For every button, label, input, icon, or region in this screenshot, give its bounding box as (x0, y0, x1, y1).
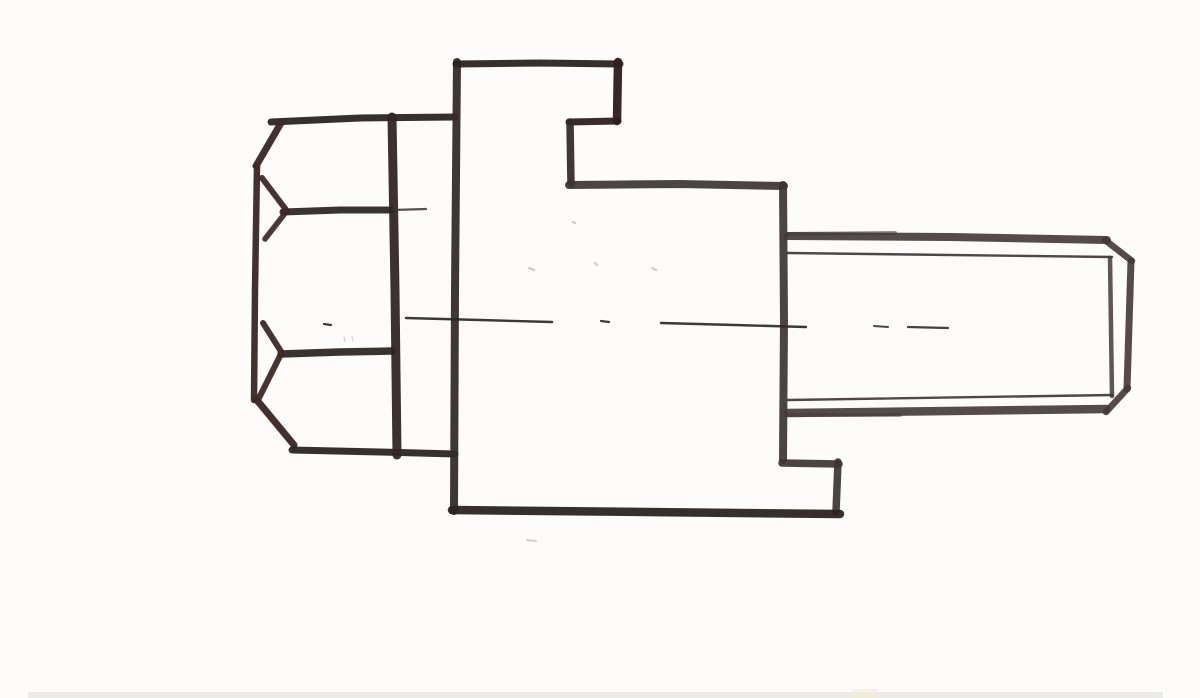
shank-bottom-edge (788, 409, 1106, 413)
shank-chamfer-root-edge (1110, 258, 1112, 396)
head-left-edge (254, 166, 257, 400)
axis-dash-3 (874, 326, 888, 327)
body-upper-right-edge (617, 62, 618, 121)
sketch-canvas (0, 0, 1200, 698)
body-bottom-edge (452, 510, 840, 514)
head-bottom-edge (292, 450, 455, 454)
paper-background (0, 0, 1200, 698)
body-foot-step-top (782, 463, 839, 464)
paper-speck-7 (527, 540, 536, 541)
paper-speck-4 (595, 263, 597, 265)
body-top-edge (456, 63, 620, 64)
paper-speck-3 (573, 222, 575, 223)
head-face-line-lower (281, 351, 392, 354)
paper-speck-6 (352, 337, 353, 341)
shank-end-edge (1127, 261, 1131, 389)
body-step-edge (570, 122, 571, 184)
head-face-line-upper-tick (392, 209, 426, 210)
paper-speck-5 (344, 337, 345, 341)
bolt-sketch-drawing (0, 0, 1200, 698)
body-step-top (569, 121, 618, 122)
shank-top-edge (788, 236, 1107, 240)
paper-edge-shadow (28, 692, 1163, 698)
body-right-edge (783, 185, 784, 460)
shank-top-edge-overlap (788, 233, 895, 234)
axis-dash-4 (908, 327, 948, 328)
axis-dot-1 (324, 324, 331, 325)
body-left-edge (454, 62, 457, 511)
paper-warm-spot (852, 689, 878, 698)
body-shoulder-edge (569, 184, 784, 186)
body-foot-step-edge (836, 462, 838, 512)
axis-dot-2 (601, 321, 609, 322)
head-corner-edge (392, 117, 397, 455)
head-face-line-upper (283, 210, 391, 212)
